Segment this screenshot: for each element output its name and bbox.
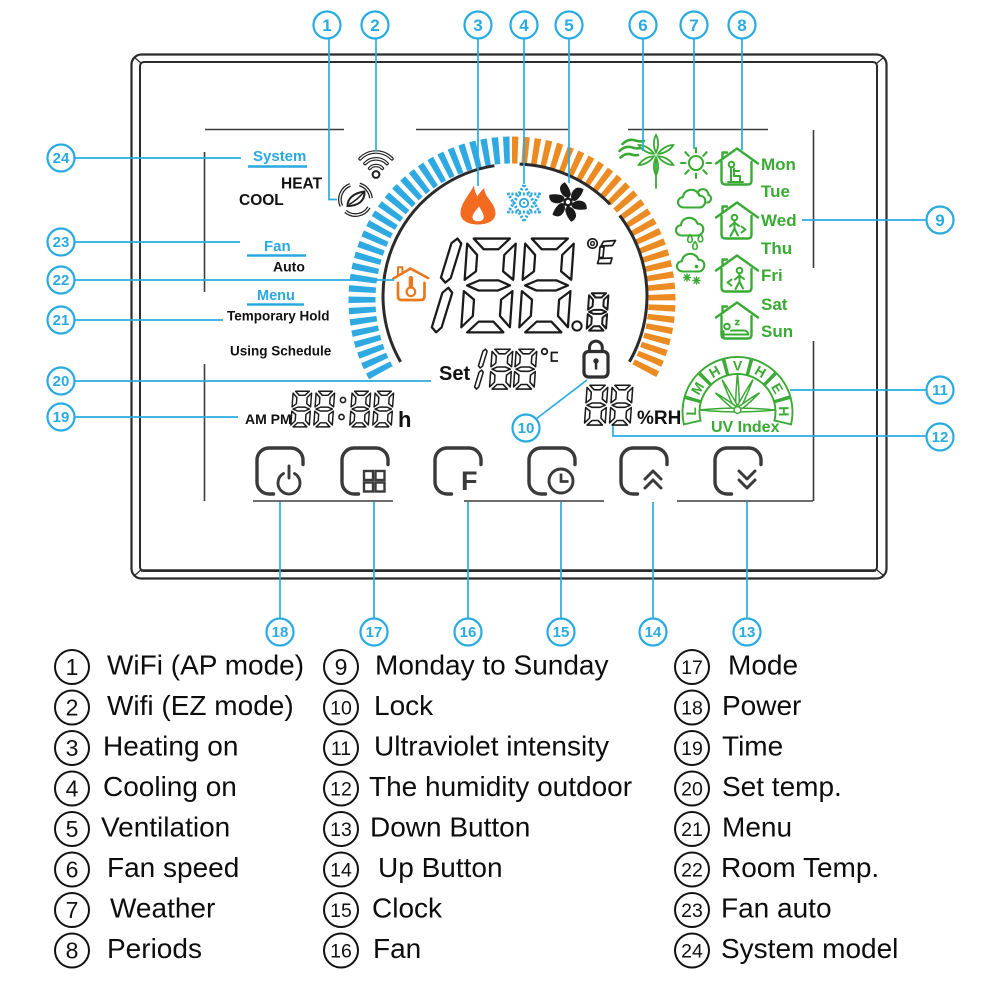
svg-text:1: 1 — [66, 654, 79, 680]
svg-text:Fan: Fan — [373, 933, 421, 964]
svg-text:12: 12 — [330, 779, 352, 801]
svg-text:3: 3 — [66, 735, 79, 761]
svg-text:Wifi (EZ mode): Wifi (EZ mode) — [107, 690, 294, 721]
svg-text:17: 17 — [681, 657, 703, 679]
svg-text:System model: System model — [721, 933, 898, 964]
svg-text:h: h — [398, 407, 411, 432]
svg-text:Wed: Wed — [761, 211, 797, 230]
svg-text:Cooling on: Cooling on — [103, 771, 237, 802]
svg-text:F: F — [461, 466, 478, 496]
svg-text:4: 4 — [66, 776, 79, 802]
svg-text:Auto: Auto — [273, 259, 305, 275]
svg-text:Heating on: Heating on — [103, 731, 238, 762]
svg-text:Ultraviolet intensity: Ultraviolet intensity — [374, 731, 609, 762]
svg-text:19: 19 — [681, 738, 703, 760]
svg-text:2: 2 — [370, 16, 379, 35]
svg-text:Thu: Thu — [761, 239, 792, 258]
svg-text:%RH: %RH — [637, 408, 681, 429]
svg-text:14: 14 — [645, 624, 662, 641]
svg-text:Periods: Periods — [107, 933, 202, 964]
svg-text:Ventilation: Ventilation — [101, 812, 230, 843]
svg-text:23: 23 — [53, 234, 70, 251]
svg-text:AM PM: AM PM — [245, 411, 292, 427]
svg-text:Down Button: Down Button — [370, 812, 530, 843]
svg-text:10: 10 — [518, 420, 535, 437]
svg-text:The humidity outdoor: The humidity outdoor — [369, 771, 632, 802]
svg-text:18: 18 — [681, 698, 703, 720]
svg-text:10: 10 — [330, 698, 352, 720]
svg-text:Menu: Menu — [722, 812, 792, 843]
svg-text:17: 17 — [366, 624, 383, 641]
svg-text:5: 5 — [66, 816, 79, 842]
svg-text:COOL: COOL — [239, 192, 284, 209]
svg-text:23: 23 — [681, 900, 703, 922]
svg-text:24: 24 — [53, 150, 70, 167]
svg-text:1: 1 — [322, 16, 331, 35]
svg-text:8: 8 — [737, 16, 746, 35]
svg-text:15: 15 — [553, 624, 570, 641]
svg-text:18: 18 — [272, 624, 289, 641]
svg-text:WiFi (AP mode): WiFi (AP mode) — [107, 650, 304, 681]
svg-text:11: 11 — [331, 738, 351, 760]
svg-text:Sun: Sun — [761, 322, 793, 341]
svg-text:Sat: Sat — [761, 295, 788, 314]
svg-text:21: 21 — [681, 819, 703, 841]
svg-text:Mon: Mon — [761, 155, 796, 174]
svg-text:22: 22 — [53, 272, 70, 289]
svg-text:Up Button: Up Button — [378, 852, 503, 883]
svg-text:9: 9 — [935, 211, 944, 230]
svg-text:H: H — [776, 406, 792, 416]
svg-text:13: 13 — [330, 819, 352, 841]
svg-text:14: 14 — [330, 860, 352, 882]
svg-text:16: 16 — [460, 624, 477, 641]
svg-text:Fan auto: Fan auto — [721, 893, 832, 924]
svg-text:16: 16 — [330, 941, 352, 963]
svg-text:Set: Set — [439, 363, 470, 385]
svg-text:Lock: Lock — [374, 690, 434, 721]
svg-text:8: 8 — [66, 938, 79, 964]
svg-text:15: 15 — [330, 900, 352, 922]
svg-text:Room Temp.: Room Temp. — [721, 852, 879, 883]
svg-text:24: 24 — [681, 941, 703, 963]
svg-text:19: 19 — [53, 409, 70, 426]
svg-text:6: 6 — [638, 16, 647, 35]
svg-text:7: 7 — [689, 16, 698, 35]
svg-text:7: 7 — [66, 897, 79, 923]
svg-text:Temporary Hold: Temporary Hold — [227, 309, 330, 324]
svg-text:Clock: Clock — [372, 893, 443, 924]
svg-text:20: 20 — [681, 779, 703, 801]
svg-text:22: 22 — [681, 860, 703, 882]
svg-text:Tue: Tue — [761, 182, 790, 201]
svg-text:Monday to Sunday: Monday to Sunday — [375, 650, 609, 681]
svg-text:Using Schedule: Using Schedule — [230, 344, 332, 359]
svg-text:13: 13 — [739, 624, 756, 641]
svg-text:5: 5 — [564, 16, 573, 35]
svg-text:UV Index: UV Index — [711, 419, 780, 436]
svg-text:Fan: Fan — [264, 238, 291, 255]
svg-text:2: 2 — [66, 695, 79, 721]
svg-text:Fan speed: Fan speed — [107, 852, 239, 883]
svg-text:L: L — [683, 406, 699, 415]
svg-text:9: 9 — [335, 654, 348, 680]
svg-text:20: 20 — [53, 373, 70, 390]
svg-text:3: 3 — [473, 16, 482, 35]
svg-text:HEAT: HEAT — [281, 176, 323, 193]
svg-text:V: V — [733, 358, 743, 374]
svg-text:12: 12 — [932, 429, 949, 446]
svg-text:Mode: Mode — [728, 650, 798, 681]
svg-text:Set temp.: Set temp. — [722, 771, 842, 802]
svg-text:System: System — [253, 148, 306, 165]
svg-text:6: 6 — [66, 857, 79, 883]
svg-text:Fri: Fri — [761, 266, 783, 285]
svg-text:4: 4 — [519, 16, 529, 35]
svg-text:Power: Power — [722, 690, 801, 721]
svg-text:Time: Time — [722, 731, 783, 762]
svg-text:21: 21 — [53, 312, 70, 329]
svg-text:Weather: Weather — [110, 893, 215, 924]
svg-text:11: 11 — [932, 382, 948, 399]
svg-text:Menu: Menu — [257, 288, 295, 304]
